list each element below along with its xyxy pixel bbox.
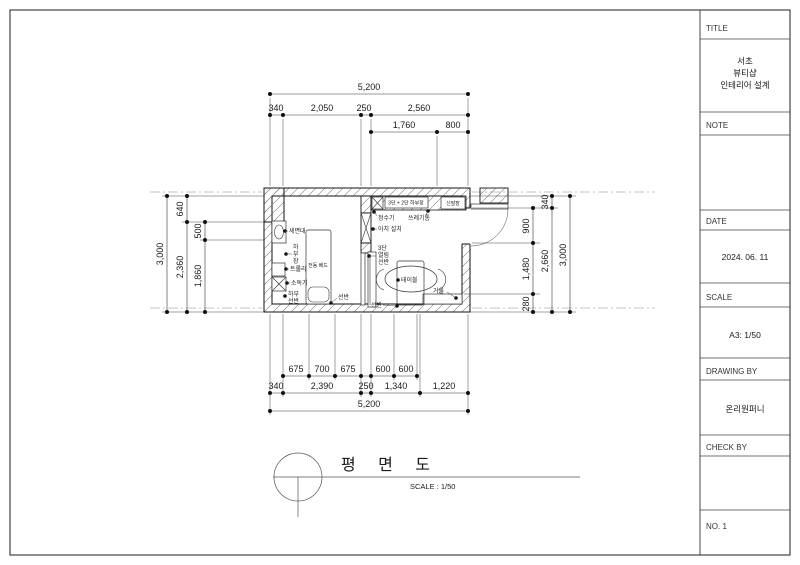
dimensions-bottom: 675 700 675 600 600 340 2,390 250 1,340 … [268, 314, 470, 415]
dim-bot-1340: 1,340 [385, 381, 408, 391]
shelf-left-label: 선반 [338, 293, 350, 301]
note-label: NOTE [706, 121, 728, 130]
plan-title-text: 평 면 도 [341, 456, 439, 474]
lower-cabinet-label-1: 하 [293, 243, 299, 251]
shoe-cabinet-label: 신발장 [446, 200, 460, 207]
trolley-fixture [272, 263, 285, 276]
sterilizer-label: 소독기 [291, 279, 308, 287]
project-name-line2: 뷰티샵 [733, 68, 757, 78]
title-label: TITLE [706, 24, 728, 33]
dim-left-2360: 2,360 [175, 256, 185, 279]
dim-bot-1220: 1,220 [433, 381, 456, 391]
tier-shelf-label-1: 3단 [378, 244, 387, 252]
dim-top-total: 5,200 [358, 82, 381, 92]
floor-plan-svg: TITLE 서초 뷰티샵 인테리어 설계 NOTE DATE 2024. 06.… [0, 0, 800, 565]
lower-shelf-label-2: 선반 [288, 297, 300, 305]
scale-value: A3: 1/50 [729, 330, 761, 340]
tier-shelf-label-2: 열림 [378, 251, 389, 259]
dim-top-2050: 2,050 [311, 103, 334, 113]
dim-left-total: 3,000 [155, 243, 165, 266]
project-name-line3: 인테리어 설계 [720, 80, 769, 90]
dim-bot-340: 340 [268, 381, 283, 391]
dim-left-1860: 1,860 [193, 265, 203, 288]
arch-label: 아치 설치 [378, 225, 402, 233]
dim-bot-2390: 2,390 [311, 381, 334, 391]
dimensions-right: 900 1,480 280 340 2,660 3,000 [464, 194, 576, 314]
dim-left-640: 640 [175, 201, 185, 216]
dim-bot-600a: 600 [375, 364, 390, 374]
dim-left-500: 500 [193, 223, 203, 238]
mirror-label: 거울 [433, 287, 445, 295]
dim-top-800: 800 [445, 120, 460, 130]
check-by-label: CHECK BY [706, 443, 748, 452]
dimensions-top: 5,200 340 2,050 250 2,560 1,760 800 [268, 82, 470, 186]
dim-right-280: 280 [521, 296, 531, 311]
dim-top-1760: 1,760 [393, 120, 416, 130]
drawing-by-label: DRAWING BY [706, 367, 758, 376]
electric-bed-label: 전동 베드 [308, 262, 328, 269]
drawing-sheet: TITLE 서초 뷰티샵 인테리어 설계 NOTE DATE 2024. 06.… [0, 0, 800, 565]
dim-bot-675a: 675 [288, 364, 303, 374]
chair-right [438, 269, 446, 290]
washbasin-label: 세면대 [289, 227, 306, 235]
dim-bot-600b: 600 [398, 364, 413, 374]
dim-right-1480: 1,480 [521, 258, 531, 281]
water-purifier-label: 정수기 [378, 214, 395, 222]
title-block: TITLE 서초 뷰티샵 인테리어 설계 NOTE DATE 2024. 06.… [700, 24, 790, 531]
trolley-label: 트롤리 [290, 265, 307, 273]
tier-shelf-fixture [368, 252, 376, 307]
tier-shelf-label-3: 선반 [378, 258, 390, 266]
trash-bin-label: 쓰레기통 [408, 214, 431, 222]
drawing-title: 평 면 도 SCALE : 1/50 [273, 453, 580, 517]
door [471, 204, 508, 246]
dim-top-340: 340 [268, 103, 283, 113]
dim-right-900: 900 [521, 218, 531, 233]
dim-bot-total: 5,200 [358, 399, 381, 409]
scale-label: SCALE [706, 293, 732, 302]
drawing-by-value: 온리원퍼니 [725, 404, 764, 414]
sheet-number: NO. 1 [706, 522, 727, 531]
dim-top-2560: 2,560 [408, 103, 431, 113]
project-name-line1: 서초 [737, 56, 753, 66]
lower-cabinet-label-2: 부 [293, 251, 299, 258]
dim-right-2660: 2,660 [540, 250, 550, 273]
shelf-right-label: 선반 [371, 301, 383, 309]
date-label: DATE [706, 217, 727, 226]
dim-top-250: 250 [356, 103, 371, 113]
dim-right-340: 340 [540, 194, 550, 209]
lower-cabinet-label-3: 장 [293, 257, 299, 265]
chair-left [376, 269, 384, 290]
table-label: 테이블 [401, 276, 418, 284]
dim-bot-250: 250 [358, 381, 373, 391]
top-cabinet-label: 3단 + 2단 하부장 [388, 200, 424, 207]
dim-bot-675b: 675 [340, 364, 355, 374]
date-value: 2024. 06. 11 [722, 252, 769, 262]
plan-scale-note: SCALE : 1/50 [410, 482, 455, 491]
lower-shelf-label-1: 하부 [288, 290, 300, 298]
dim-right-total: 3,000 [558, 244, 568, 267]
dim-bot-700: 700 [314, 364, 329, 374]
dimensions-left: 3,000 640 2,360 500 1,860 [155, 194, 264, 314]
